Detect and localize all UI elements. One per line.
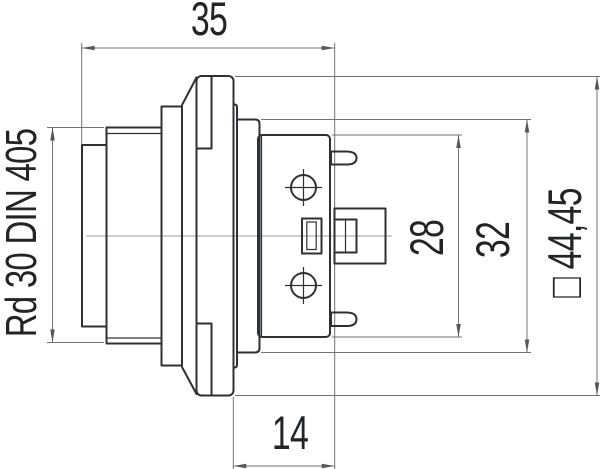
dimension-label-14: 14 (268, 412, 311, 452)
dimension-label-35: 35 (187, 0, 230, 36)
dimension-label-32: 32 (472, 197, 512, 283)
dimension-label-28: 28 (406, 195, 446, 281)
dimension-label-flange-square: □ 44,45 (541, 182, 587, 304)
technical-drawing-canvas: 35 Rd 30 DIN 405 28 32 □ 44,45 14 (0, 0, 600, 469)
dimension-label-thread-spec: Rd 30 DIN 405 (0, 120, 44, 345)
